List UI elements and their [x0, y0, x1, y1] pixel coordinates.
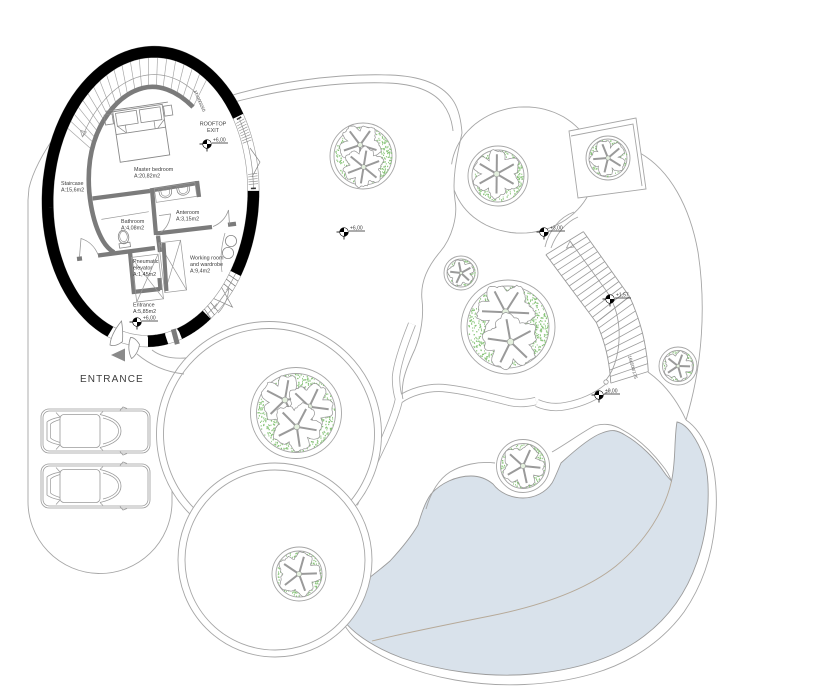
svg-text:ENTRANCE: ENTRANCE	[80, 374, 144, 385]
svg-text:EntranceA:5,85m2: EntranceA:5,85m2	[133, 303, 156, 316]
svg-text:BathroomA:4,08m2: BathroomA:4,08m2	[121, 219, 145, 232]
svg-text:+1,57: +1,57	[616, 293, 629, 299]
svg-text:AnteroomA:3,15m2: AnteroomA:3,15m2	[176, 210, 200, 223]
svg-text:+3,00: +3,00	[550, 226, 563, 232]
svg-text:+6,00: +6,00	[213, 138, 226, 144]
svg-text:+6,00: +6,00	[143, 316, 156, 322]
svg-text:+6,00: +6,00	[350, 226, 363, 232]
svg-text:±0,00: ±0,00	[605, 389, 618, 395]
svg-text:StaircaseA:15,6m2: StaircaseA:15,6m2	[61, 181, 84, 194]
